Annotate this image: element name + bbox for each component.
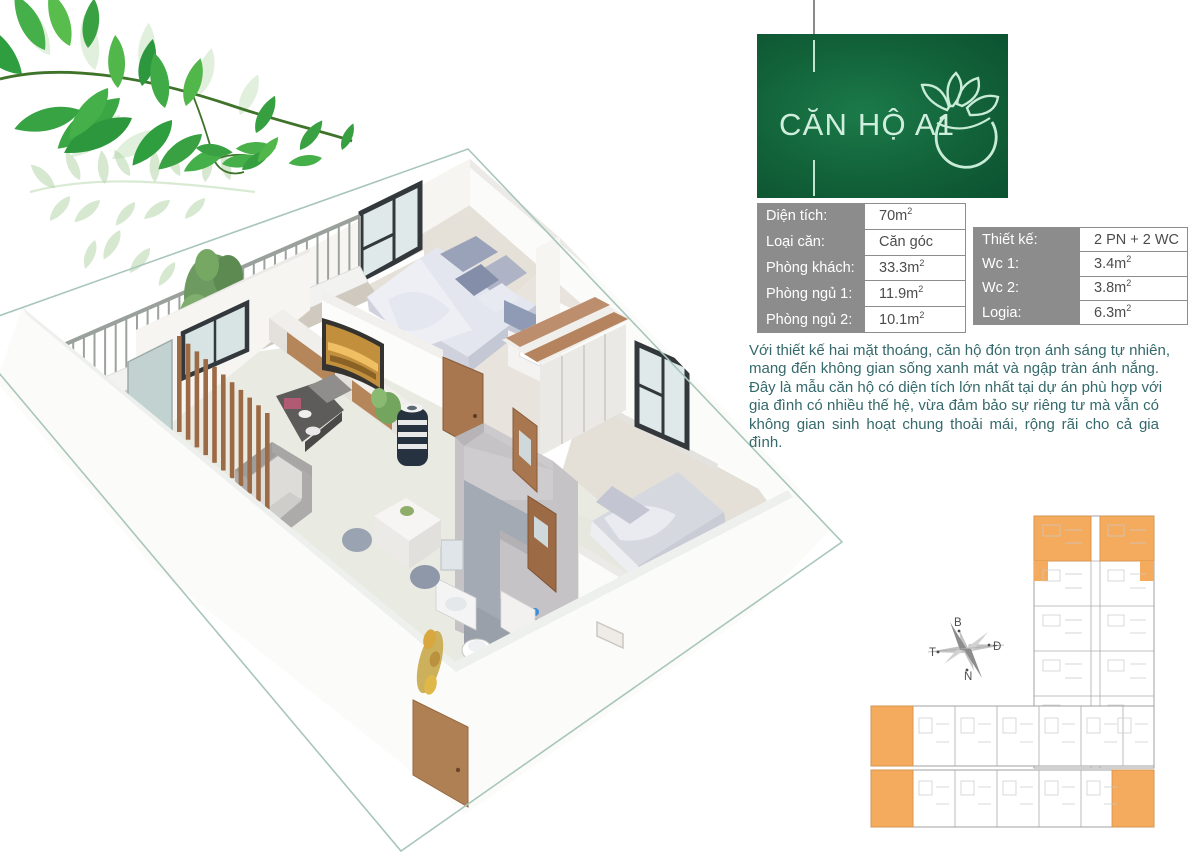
svg-text:T: T	[929, 647, 936, 659]
svg-text:B: B	[954, 617, 962, 629]
svg-text:N: N	[964, 671, 972, 683]
svg-text:Đ: Đ	[993, 641, 1001, 653]
